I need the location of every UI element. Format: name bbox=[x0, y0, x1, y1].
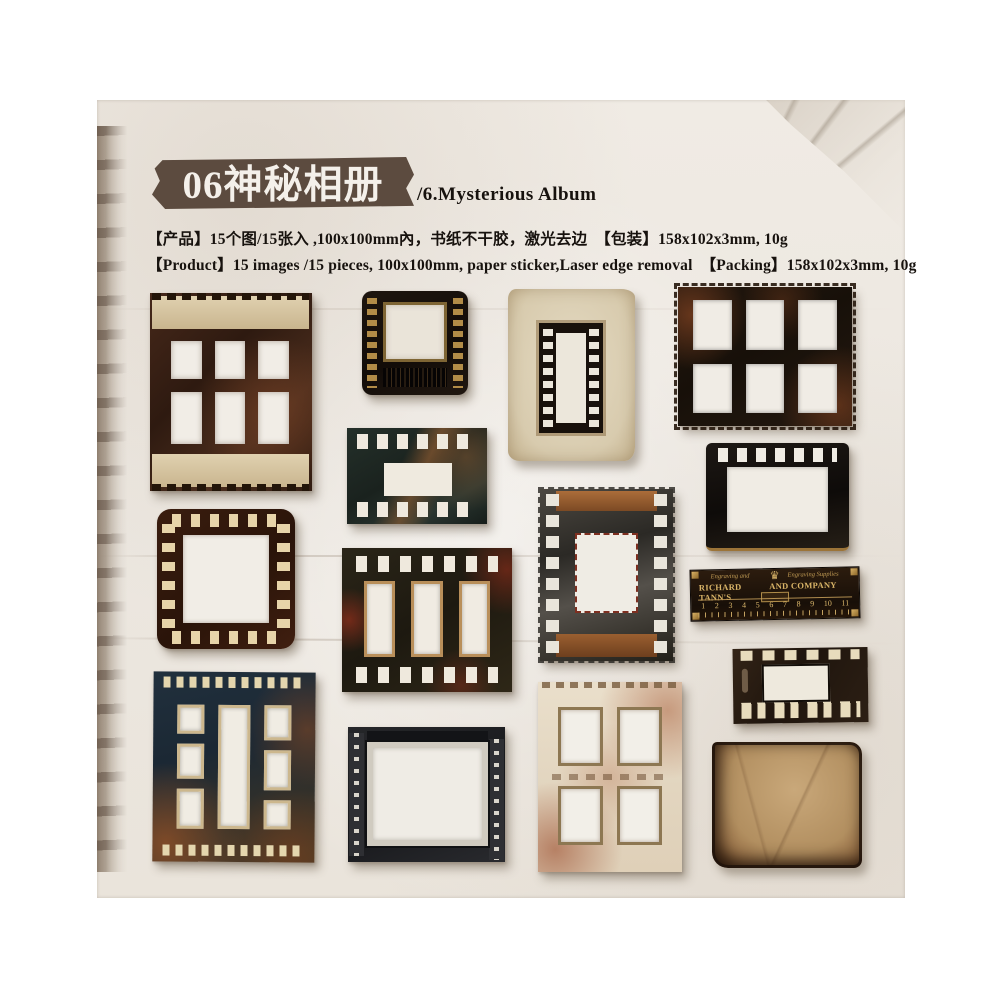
frame-window bbox=[263, 800, 290, 830]
gold-corner bbox=[850, 568, 857, 575]
frame-window bbox=[177, 789, 204, 829]
frame-window bbox=[264, 750, 291, 790]
ruler-numbers: 1234567891011 bbox=[701, 598, 849, 610]
six-pane-taped-frame-sticker bbox=[150, 293, 312, 491]
frame-window bbox=[727, 467, 828, 532]
seven-window-frame-sticker bbox=[152, 671, 315, 862]
ruler-ticks bbox=[698, 609, 852, 617]
frame-window bbox=[218, 705, 250, 829]
three-slot-film-frame-sticker bbox=[342, 548, 512, 692]
frame-window bbox=[617, 786, 662, 845]
sprocket-strip bbox=[489, 739, 504, 860]
film-band bbox=[383, 368, 447, 387]
ruler-number: 7 bbox=[783, 600, 787, 609]
frame-window bbox=[384, 463, 452, 496]
tape-strip bbox=[152, 454, 309, 487]
frame-window bbox=[215, 392, 246, 444]
frame-window bbox=[558, 786, 603, 845]
ruler-number: 11 bbox=[841, 598, 849, 607]
sprocket-row bbox=[718, 448, 837, 462]
four-pane-rust-frame-sticker bbox=[538, 682, 682, 872]
ruler-number: 5 bbox=[756, 600, 760, 609]
subtitle: /6.Mysterious Album bbox=[417, 184, 596, 206]
frame-window bbox=[215, 341, 246, 379]
film-scrap-frame-sticker bbox=[347, 428, 487, 524]
sprocket-row bbox=[741, 649, 860, 661]
page-title: 06神秘相册 bbox=[182, 154, 383, 210]
ruler-number: 6 bbox=[769, 600, 773, 609]
sprocket-row bbox=[357, 434, 477, 449]
frame-window bbox=[264, 705, 291, 740]
ruler-number: 10 bbox=[824, 599, 832, 608]
ruler-script-right: Engraving Supplies bbox=[787, 571, 838, 579]
sprocket-row bbox=[741, 701, 860, 719]
vertical-filmstrip-frame-sticker bbox=[540, 489, 673, 661]
glossy-black-frame-sticker bbox=[706, 443, 849, 551]
perforation-row bbox=[162, 845, 304, 857]
white-border-frame-sticker bbox=[348, 727, 505, 862]
torn-paper-edge bbox=[97, 126, 127, 872]
window-column bbox=[177, 705, 205, 829]
sprocket-row bbox=[357, 502, 477, 517]
dash-border bbox=[172, 631, 280, 644]
frame-window bbox=[171, 392, 202, 444]
frame-window bbox=[177, 744, 204, 779]
frame-window bbox=[459, 581, 490, 657]
ruler-number: 9 bbox=[810, 599, 814, 608]
copper-band bbox=[556, 634, 657, 657]
gold-corner bbox=[692, 572, 699, 579]
tape-strip bbox=[152, 296, 309, 329]
sprocket-row bbox=[356, 667, 498, 683]
burnt-parchment-sticker bbox=[712, 742, 862, 868]
frame-window bbox=[367, 742, 488, 846]
frame-window bbox=[575, 533, 638, 613]
paper-mounted-film-frame-sticker bbox=[508, 289, 635, 461]
frame-windows bbox=[693, 300, 837, 413]
frame-window bbox=[798, 300, 837, 350]
frame-window bbox=[171, 341, 202, 379]
frame-window bbox=[762, 664, 831, 703]
ruler-number: 4 bbox=[742, 601, 746, 610]
copper-band bbox=[556, 491, 657, 511]
frame-window bbox=[556, 333, 586, 423]
richard-tanns-ruler-sticker: Engraving and Engraving Supplies ♛ RICHA… bbox=[689, 566, 860, 622]
sprocket-column bbox=[654, 494, 667, 656]
dash-border bbox=[172, 514, 280, 527]
frame-window bbox=[693, 300, 732, 350]
sprocket-column bbox=[453, 298, 463, 388]
frame-window bbox=[746, 364, 785, 414]
window-column bbox=[218, 705, 250, 829]
frame-window bbox=[617, 707, 662, 766]
frame-window bbox=[183, 535, 269, 623]
sprocket-strip bbox=[349, 733, 364, 856]
metal-clip bbox=[742, 669, 748, 693]
sprocket-column bbox=[543, 329, 553, 427]
ruler-script-left: Engraving and bbox=[711, 573, 750, 581]
frame-windows bbox=[558, 707, 662, 845]
frame-windows bbox=[177, 705, 292, 830]
frame-window bbox=[693, 364, 732, 414]
small-sprocket-frame-sticker bbox=[732, 647, 868, 724]
sprocket-column bbox=[367, 298, 377, 388]
window-column bbox=[263, 705, 291, 829]
product-info-cn: 【产品】15个图/15张入 ,100x100mm內，书纸不干胶，激光去边 【包装… bbox=[147, 227, 788, 249]
perforation-row bbox=[164, 677, 306, 689]
frame-window bbox=[258, 341, 289, 379]
film-frame bbox=[539, 323, 603, 433]
paper-background: 06神秘相册 /6.Mysterious Album 【产品】15个图/15张入… bbox=[97, 100, 905, 898]
title-label: 06神秘相册 bbox=[152, 157, 414, 209]
dashed-border-frame-sticker bbox=[157, 509, 295, 649]
slide-mount-frame-sticker bbox=[362, 291, 468, 395]
frame-window bbox=[746, 300, 785, 350]
frame-window bbox=[411, 581, 442, 657]
serrated-six-window-frame-sticker bbox=[678, 287, 852, 426]
dash-border bbox=[277, 524, 290, 634]
frame-window bbox=[364, 581, 395, 657]
frame-window bbox=[798, 364, 837, 414]
top-band bbox=[367, 731, 488, 740]
frame-windows bbox=[171, 341, 289, 444]
frame-window bbox=[383, 302, 447, 362]
sprocket-row bbox=[356, 556, 498, 572]
dash-border bbox=[162, 524, 175, 634]
product-sheet: 06神秘相册 /6.Mysterious Album 【产品】15个图/15张入… bbox=[0, 0, 1000, 1000]
frame-windows bbox=[364, 581, 490, 657]
ruler-number: 1 bbox=[701, 601, 705, 610]
ruler-scale: 1234567891011 bbox=[698, 596, 852, 617]
frame-window bbox=[258, 392, 289, 444]
sprocket-column bbox=[546, 494, 559, 656]
ruler-number: 8 bbox=[796, 599, 800, 608]
ruler-number: 2 bbox=[715, 601, 719, 610]
frame-window bbox=[177, 705, 204, 735]
ruler-number: 3 bbox=[728, 601, 732, 610]
sprocket-column bbox=[589, 329, 599, 427]
crumpled-corner bbox=[727, 100, 905, 238]
frame-window bbox=[558, 707, 603, 766]
product-info-en: 【Product】15 images /15 pieces, 100x100mm… bbox=[147, 253, 917, 275]
